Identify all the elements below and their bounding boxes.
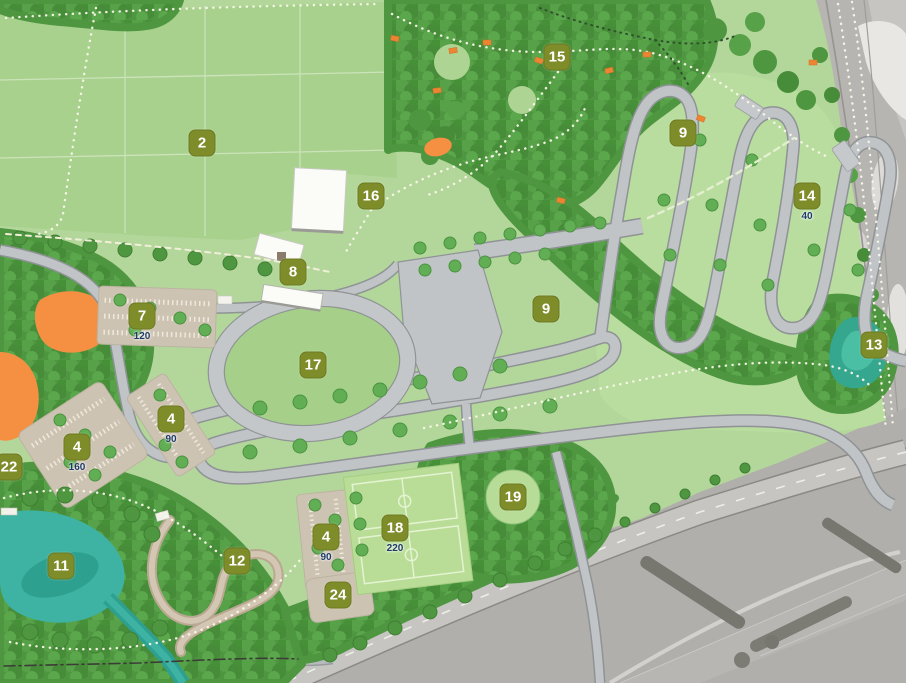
marker-capacity: 220 xyxy=(387,543,404,554)
marker-number: 4 xyxy=(158,406,185,433)
marker-number: 9 xyxy=(670,120,697,147)
marker-number: 19 xyxy=(500,484,527,511)
marker-capacity: 40 xyxy=(801,211,812,222)
marker-number: 15 xyxy=(544,44,571,71)
marker-number: 8 xyxy=(280,259,307,286)
marker-number: 4 xyxy=(64,434,91,461)
marker-number: 2 xyxy=(189,130,216,157)
site-plan: 2 15 9 16 14 40 8 7 120 9 13 17 4 90 4 1… xyxy=(0,0,906,683)
marker-number: 22 xyxy=(0,454,23,481)
marker-capacity: 90 xyxy=(165,434,176,445)
marker-number: 18 xyxy=(382,515,409,542)
marker-number: 9 xyxy=(533,296,560,323)
marker-number: 4 xyxy=(313,524,340,551)
marker-number: 13 xyxy=(861,332,888,359)
marker-number: 11 xyxy=(48,553,75,580)
marker-capacity: 120 xyxy=(134,331,151,342)
marker-number: 17 xyxy=(300,352,327,379)
marker-number: 12 xyxy=(224,548,251,575)
marker-number: 7 xyxy=(129,303,156,330)
marker-layer: 2 15 9 16 14 40 8 7 120 9 13 17 4 90 4 1… xyxy=(0,0,906,683)
marker-number: 16 xyxy=(358,183,385,210)
marker-number: 14 xyxy=(794,183,821,210)
marker-capacity: 90 xyxy=(320,552,331,563)
marker-capacity: 160 xyxy=(69,462,86,473)
marker-number: 24 xyxy=(325,582,352,609)
